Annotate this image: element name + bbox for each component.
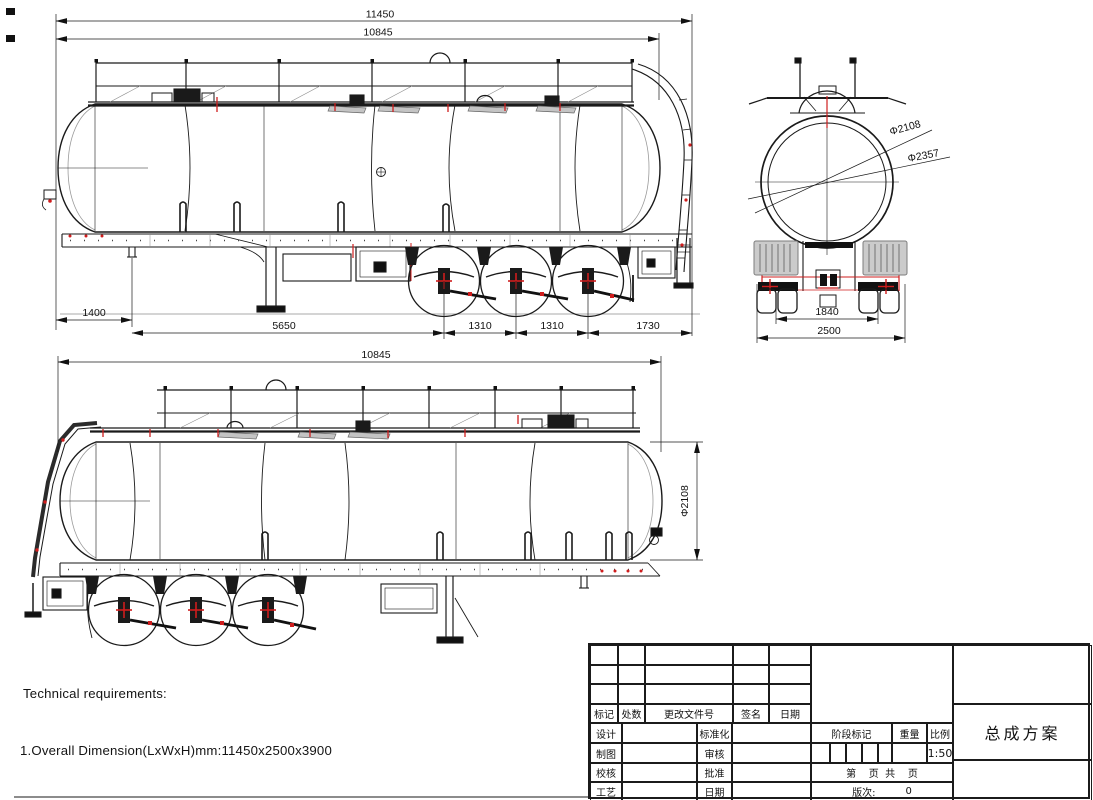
titleblock-version-row: 版次:0 [811, 782, 953, 800]
titleblock-drawing-title: 总成方案 [953, 704, 1092, 760]
titleblock-cell [732, 723, 811, 743]
dim-front-to-kingpin: 1400 [82, 307, 106, 319]
titleblock-cell [645, 665, 733, 684]
titleblock-label-scale: 比例 [927, 723, 953, 743]
dim-tank-length: 10845 [363, 27, 392, 39]
hose-arch [266, 380, 286, 390]
tank-shell [58, 104, 660, 232]
titleblock-label-date: 日期 [769, 704, 811, 723]
dim-axle-spacing-1: 1310 [468, 320, 492, 332]
rear-suspension [754, 241, 907, 313]
titleblock-cell [846, 743, 862, 763]
toolbox [381, 584, 437, 613]
titleblock-cell [622, 782, 697, 800]
titleblock-cell [878, 743, 892, 763]
top-fittings [749, 58, 906, 128]
hose-arch [430, 53, 450, 63]
titleblock-cell [618, 684, 645, 704]
titleblock-cell [645, 645, 733, 665]
kingpin [127, 247, 137, 257]
titleblock-cell [590, 645, 618, 665]
titleblock-cell [953, 760, 1092, 800]
titleblock-cell [645, 684, 733, 704]
titleblock-label-standardization: 标准化 [697, 723, 732, 743]
titleblock-version-value: 0 [906, 786, 912, 797]
titleblock-cell [732, 743, 811, 763]
titleblock-label-process: 工艺 [590, 782, 622, 800]
titleblock-label-approval: 批准 [697, 763, 732, 782]
titleblock-cell [862, 743, 878, 763]
titleblock-cell [769, 645, 811, 665]
rear-box [25, 577, 87, 617]
titleblock-cell [733, 665, 769, 684]
titleblock-label-design: 设计 [590, 723, 622, 743]
dimensions-rear-view: 1840 2500 Φ2108 Φ2357 [757, 118, 940, 343]
titleblock-label-weight: 重量 [892, 723, 927, 743]
right-fender [863, 241, 907, 275]
titleblock-label-signature: 签名 [733, 704, 769, 723]
technical-requirements: Technical requirements: 1.Overall Dimens… [20, 646, 595, 800]
titleblock-cell [892, 743, 927, 763]
chassis-frame [25, 528, 662, 643]
dim-spring-track: 1840 [815, 306, 839, 318]
titleblock-scale-value: 1:50 [927, 743, 953, 763]
dimensions-side-view-top: 11450 10845 1400 5650 1310 1310 1730 [56, 9, 692, 340]
rear-ladder [33, 423, 101, 577]
landing-gear [437, 576, 478, 643]
titleblock-cell [732, 782, 811, 800]
titleblock-cell [733, 684, 769, 704]
tank-baffles [130, 443, 535, 560]
titleblock-cell [811, 645, 953, 723]
titleblock-label-change-doc-no: 更改文件号 [645, 704, 733, 723]
landing-gear [240, 247, 285, 312]
side-view-top: 11450 10845 1400 5650 1310 1310 1730 [42, 9, 700, 340]
dim-kingpin-to-first-axle: 5650 [272, 320, 296, 332]
rear-ladder [632, 64, 692, 272]
chassis-frame [60, 202, 700, 314]
front-coupling [42, 190, 56, 210]
rear-view: 1840 2500 Φ2108 Φ2357 [748, 58, 950, 343]
titleblock-label-date2: 日期 [697, 782, 732, 800]
titleblock-version-label: 版次: [852, 784, 875, 799]
dim-overall-width: 2500 [817, 325, 841, 337]
tank-port [377, 168, 386, 177]
titleblock-label-stage-mark: 阶段标记 [811, 723, 892, 743]
titleblock-cell [953, 645, 1092, 704]
left-fender [754, 241, 798, 275]
manhole-fittings [103, 415, 588, 439]
dim-overall-length: 11450 [366, 9, 395, 21]
titleblock-cell [590, 665, 618, 684]
axles-wheels [85, 575, 316, 646]
titleblock-cell [618, 665, 645, 684]
titleblock-label-mark: 标记 [590, 704, 618, 723]
titleblock-cell [622, 723, 697, 743]
titleblock-cell [769, 665, 811, 684]
titleblock-label-review: 审核 [697, 743, 732, 763]
manhole-fittings [152, 89, 576, 113]
title-block: 标记 处数 更改文件号 签名 日期 设计 标准化 制图 审核 校核 批准 工艺 … [588, 643, 1090, 799]
dim-shell-inner-diameter: Φ2108 [888, 118, 922, 138]
titleblock-cell [622, 743, 697, 763]
titleblock-cell [830, 743, 846, 763]
titleblock-cell [811, 743, 830, 763]
titleblock-cell [590, 684, 618, 704]
engineering-drawing-sheet: 11450 10845 1400 5650 1310 1310 1730 [0, 0, 1093, 800]
dim-tank-diameter: Φ2108 [679, 485, 691, 517]
kingpin [579, 576, 589, 588]
toolbox [356, 247, 410, 281]
dim-last-axle-to-rear: 1730 [636, 320, 660, 332]
titleblock-cell [622, 763, 697, 782]
tech-req-title: Technical requirements: [20, 684, 595, 703]
titleblock-label-drafting: 制图 [590, 743, 622, 763]
side-view-bottom: 10845 Φ2108 [25, 349, 703, 646]
titleblock-page-text: 第 页 共 页 [811, 763, 953, 782]
dimensions-side-view-bottom: 10845 Φ2108 [58, 349, 703, 560]
titleblock-label-qty: 处数 [618, 704, 645, 723]
titleblock-cell [769, 684, 811, 704]
titleblock-cell [618, 645, 645, 665]
titleblock-cell [732, 763, 811, 782]
titleblock-label-checking: 校核 [590, 763, 622, 782]
dim-tank-length: 10845 [361, 349, 390, 361]
dim-axle-spacing-2: 1310 [540, 320, 564, 332]
titleblock-cell [733, 645, 769, 665]
tech-req-line: 1.Overall Dimension(LxWxH)mm:11450x2500x… [20, 741, 595, 760]
